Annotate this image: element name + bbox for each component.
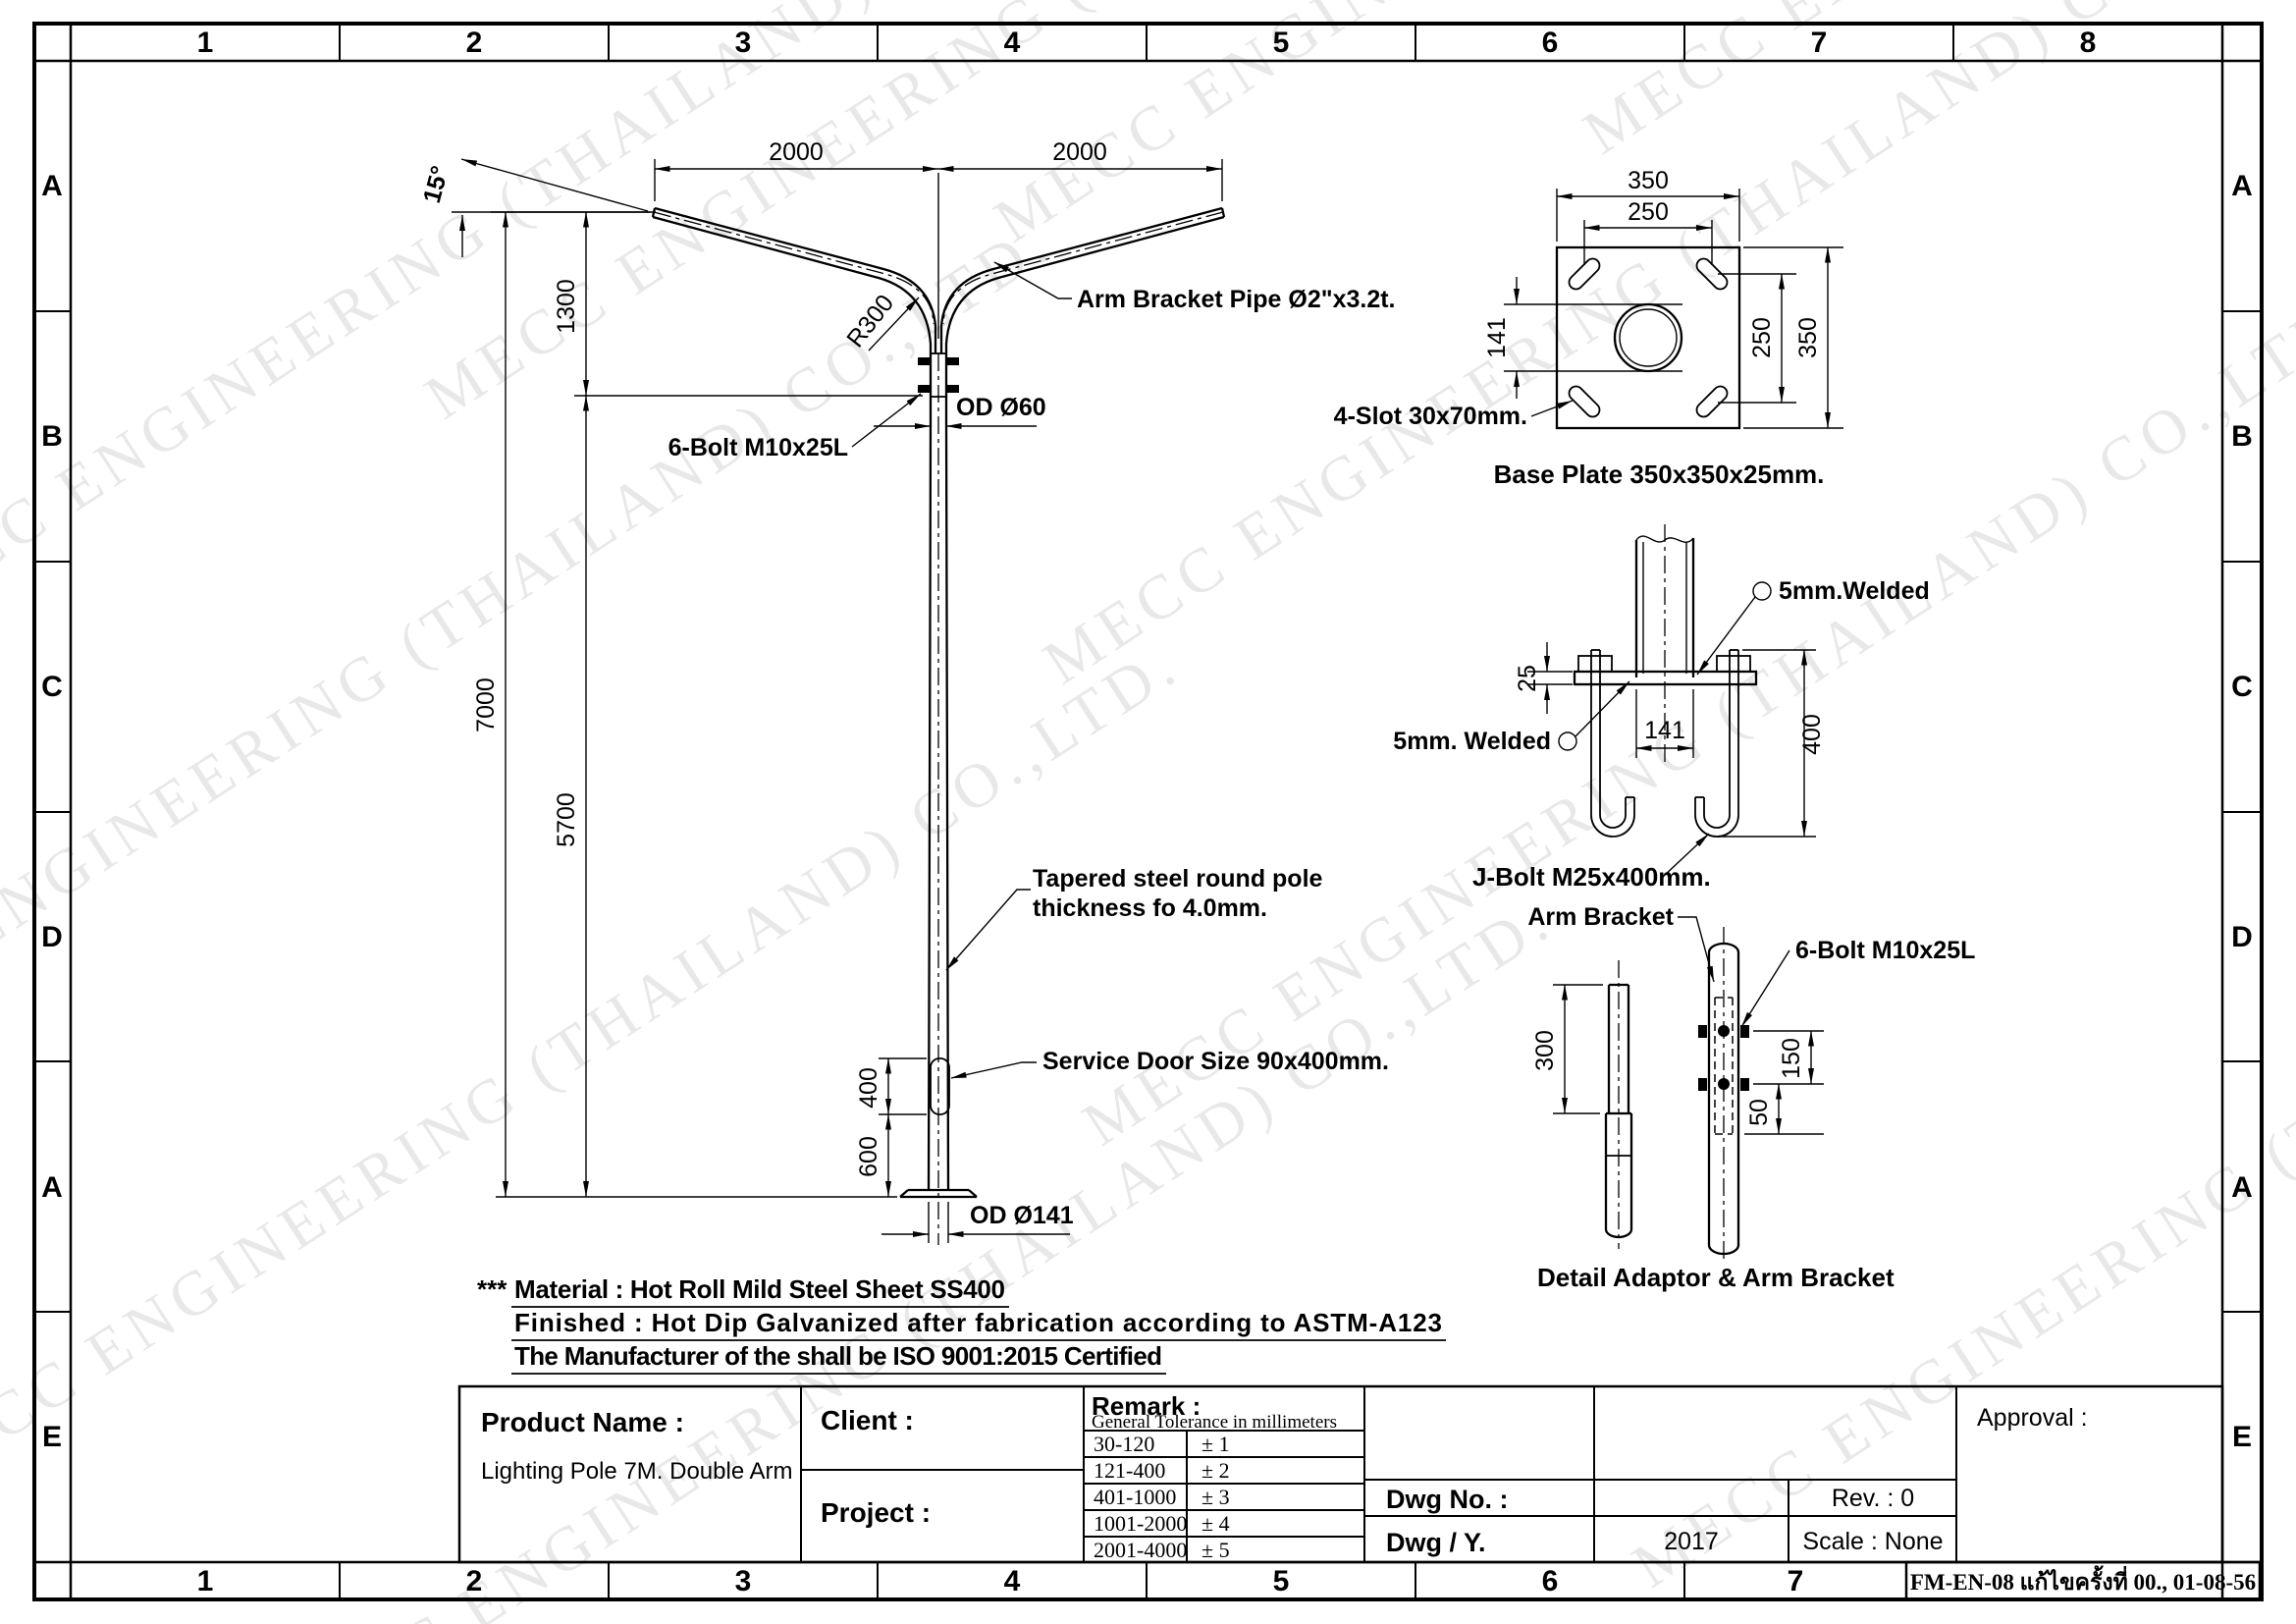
dim-600: 600: [855, 1136, 882, 1177]
plate-slots: [1567, 256, 1731, 420]
grid-row-label: A: [2231, 1171, 2253, 1204]
arm-bracket-callout: Arm Bracket: [1527, 903, 1714, 982]
client-label: Client :: [821, 1405, 914, 1435]
dwg-year: 2017: [1664, 1528, 1719, 1555]
dim-350-right: 350: [1794, 317, 1822, 358]
grid-row-label: C: [41, 671, 63, 703]
base-plate-detail: 350 250 141 250 350 4-Slot 30x70mm. Base…: [1334, 167, 1843, 489]
tol-value: ± 1: [1201, 1432, 1230, 1456]
j-bolt-left: [1578, 650, 1634, 837]
grid-row-label: D: [2231, 921, 2253, 953]
grid-col-label: 1: [197, 1565, 214, 1597]
dim-400: 400: [855, 1067, 882, 1109]
dim-heights: 1300 5700 7000: [472, 212, 923, 1197]
grid-row-label: B: [2231, 420, 2253, 453]
bracket-caption: Detail Adaptor & Arm Bracket: [1537, 1263, 1895, 1292]
grid-col-label: 3: [735, 27, 752, 59]
dim-arm-angle: 15°: [418, 159, 650, 257]
note-line-1: Material : Hot Roll Mild Steel Sheet SS4…: [514, 1274, 1005, 1304]
dim-2000-right: 2000: [1052, 138, 1107, 166]
dim-250-right: 250: [1748, 317, 1776, 358]
dim-r300: R300: [841, 290, 899, 352]
weld-callout-right: 5mm.Welded: [1697, 577, 1930, 675]
grid-row-label: A: [41, 1171, 63, 1204]
grid-col-label: 6: [1542, 27, 1559, 59]
front-view: 2000 2000 15° 1300 5700 70: [418, 138, 1396, 1245]
dim-5700: 5700: [553, 792, 580, 847]
dim-1300: 1300: [553, 279, 580, 334]
dim-7000: 7000: [472, 677, 500, 732]
material-notes: *** Material : Hot Roll Mild Steel Sheet…: [477, 1274, 1446, 1374]
weld-label-left: 5mm. Welded: [1393, 728, 1551, 755]
j-bolt-caption: J-Bolt M25x400mm.: [1472, 862, 1711, 892]
note-line-3: The Manufacturer of the shall be ISO 900…: [514, 1341, 1162, 1371]
pole-geometry: [653, 208, 1224, 1245]
j-bolt-right: [1695, 650, 1750, 837]
radius-callout: R300: [841, 290, 919, 352]
j-bolt-detail: 25 141 400 5mm.Welded 5mm. Welded: [1393, 524, 1929, 892]
grid-col-label: 7: [1811, 27, 1828, 59]
bracket-bolt-callout: 6-Bolt M10x25L: [1741, 937, 1975, 1027]
tol-range: 2001-4000: [1094, 1538, 1187, 1562]
weld-label-right: 5mm.Welded: [1779, 577, 1930, 605]
tapered-pole-callout: Tapered steel round pole thickness fo 4.…: [946, 865, 1323, 970]
grid-row-label: B: [41, 420, 63, 453]
arm-pipe-callout: Arm Bracket Pipe Ø2"x3.2t.: [994, 262, 1396, 313]
tol-range: 30-120: [1094, 1432, 1154, 1456]
dim-141-pipe: 141: [1644, 717, 1685, 744]
arm-bracket-tube: [1698, 927, 1749, 1264]
tol-value: ± 3: [1201, 1485, 1230, 1509]
grid-col-label: 1: [197, 27, 214, 59]
tol-value: ± 4: [1201, 1511, 1230, 1536]
tol-range: 401-1000: [1094, 1485, 1176, 1509]
tol-range: 1001-2000: [1094, 1511, 1187, 1536]
slot-label: 4-Slot 30x70mm.: [1334, 403, 1527, 430]
scale-value: Scale : None: [1802, 1528, 1943, 1555]
remark-subtitle: General Tolerance in millimeters: [1092, 1412, 1337, 1433]
pole-label-1: Tapered steel round pole: [1033, 865, 1323, 893]
grid-row-label: A: [2231, 170, 2253, 202]
od-60-label: OD Ø60: [956, 394, 1046, 421]
grid-row-label: E: [2232, 1421, 2252, 1453]
grid-col-label: 3: [735, 1565, 752, 1597]
grid-col-label: 7: [1788, 1565, 1804, 1597]
grid-row-label: A: [41, 170, 63, 202]
tolerance-table: 30-120 ± 1 121-400 ± 2 401-1000 ± 3 1001…: [1094, 1432, 1230, 1562]
pole-bolt-label: 6-Bolt M10x25L: [668, 434, 848, 461]
dim-350-top: 350: [1628, 167, 1669, 194]
grid-col-label: 2: [466, 1565, 483, 1597]
dim-50: 50: [1745, 1099, 1773, 1126]
dim-15deg: 15°: [418, 163, 454, 206]
adaptor: [1606, 960, 1631, 1249]
rev-value: Rev. : 0: [1832, 1485, 1914, 1512]
project-label: Project :: [821, 1497, 931, 1528]
service-door-label: Service Door Size 90x400mm.: [1042, 1048, 1389, 1075]
dwg-y-label: Dwg / Y.: [1386, 1528, 1486, 1557]
grid-col-label: 6: [1542, 1565, 1559, 1597]
bracket-bolt-label: 6-Bolt M10x25L: [1795, 937, 1975, 964]
tol-value: ± 2: [1201, 1458, 1230, 1483]
weld-callout-left: 5mm. Welded: [1393, 681, 1629, 755]
tol-value: ± 5: [1201, 1538, 1230, 1562]
note-line-2: Finished : Hot Dip Galvanized after fabr…: [514, 1308, 1442, 1337]
service-door: [931, 1058, 949, 1114]
grid-row-label: C: [2231, 671, 2253, 703]
dim-2000-left: 2000: [769, 138, 824, 166]
dim-141-hole: 141: [1483, 317, 1511, 358]
dim-25: 25: [1514, 665, 1541, 692]
od-base-dim: OD Ø141: [881, 1202, 1074, 1243]
title-block: Product Name : Lighting Pole 7M. Double …: [459, 1386, 2222, 1562]
product-name-label: Product Name :: [481, 1407, 684, 1437]
form-ref: FM-EN-08 แก้ไขครั้งที่ 00., 01-08-56: [1910, 1565, 2256, 1595]
grid-col-label: 8: [2080, 27, 2097, 59]
approval-label: Approval :: [1977, 1404, 2088, 1432]
pole-label-2: thickness fo 4.0mm.: [1033, 894, 1267, 922]
od-141-label: OD Ø141: [970, 1202, 1074, 1229]
grid-row-label: D: [41, 921, 63, 953]
grid-col-label: 4: [1004, 1565, 1021, 1597]
adaptor-bracket-detail: 300: [1527, 903, 1975, 1292]
arm-pipe-label: Arm Bracket Pipe Ø2"x3.2t.: [1077, 286, 1396, 313]
grid-row-label: E: [42, 1421, 62, 1453]
grid-col-label: 4: [1004, 27, 1021, 59]
arm-bracket-label: Arm Bracket: [1527, 903, 1674, 931]
tol-range: 121-400: [1094, 1458, 1165, 1483]
dim-400-jbolt: 400: [1798, 714, 1826, 755]
dim-150: 150: [1778, 1038, 1805, 1079]
base-plate-caption: Base Plate 350x350x25mm.: [1494, 460, 1825, 489]
dwg-no-label: Dwg No. :: [1386, 1485, 1508, 1514]
notes-prefix: ***: [477, 1274, 507, 1304]
service-door-callout: Service Door Size 90x400mm. 400 600: [855, 1048, 1389, 1197]
product-name-value: Lighting Pole 7M. Double Arm: [481, 1458, 793, 1485]
pole-bolt-callout: 6-Bolt M10x25L: [668, 394, 921, 461]
grid-col-label: 2: [466, 27, 483, 59]
grid-col-label: 5: [1273, 1565, 1290, 1597]
dim-300: 300: [1531, 1030, 1559, 1071]
grid-col-label: 5: [1273, 27, 1290, 59]
drawing-sheet: MECC ENGINEERING (THAILAND) CO.,LTD. MEC…: [0, 0, 2296, 1624]
dim-250-top: 250: [1628, 198, 1669, 226]
